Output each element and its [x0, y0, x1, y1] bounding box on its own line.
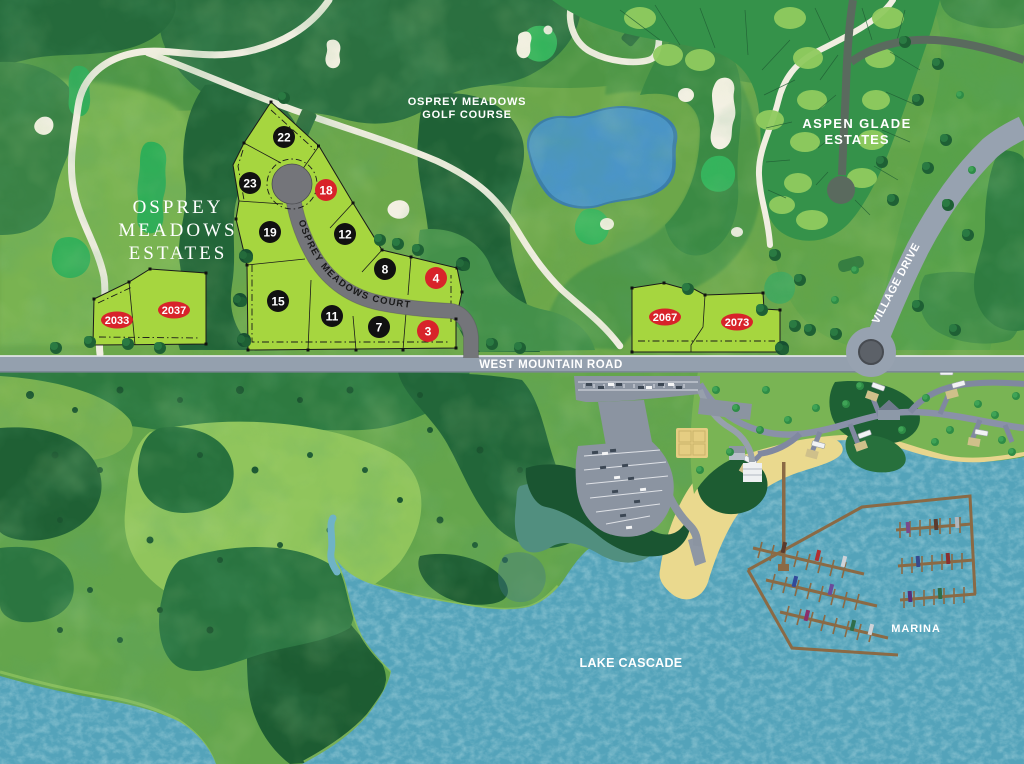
- svg-text:3: 3: [425, 325, 432, 339]
- svg-text:4: 4: [433, 272, 440, 286]
- svg-text:22: 22: [277, 131, 291, 145]
- svg-text:19: 19: [263, 226, 277, 240]
- svg-text:ESTATES: ESTATES: [129, 243, 228, 264]
- svg-text:WEST MOUNTAIN ROAD: WEST MOUNTAIN ROAD: [479, 359, 623, 371]
- svg-text:2033: 2033: [105, 315, 129, 327]
- svg-text:18: 18: [319, 184, 333, 198]
- svg-text:OSPREY MEADOWS: OSPREY MEADOWS: [408, 96, 527, 108]
- svg-text:12: 12: [338, 228, 352, 242]
- svg-text:2037: 2037: [162, 305, 186, 317]
- svg-text:7: 7: [376, 321, 383, 335]
- svg-text:ESTATES: ESTATES: [824, 132, 889, 147]
- svg-text:MEADOWS: MEADOWS: [118, 220, 237, 241]
- svg-text:15: 15: [271, 295, 285, 309]
- svg-text:8: 8: [382, 263, 389, 277]
- svg-text:11: 11: [326, 310, 339, 324]
- svg-text:2067: 2067: [653, 312, 677, 324]
- svg-text:23: 23: [243, 177, 257, 191]
- svg-text:2073: 2073: [725, 317, 749, 329]
- svg-text:LAKE CASCADE: LAKE CASCADE: [580, 656, 683, 670]
- svg-text:OSPREY: OSPREY: [133, 197, 224, 218]
- svg-text:GOLF COURSE: GOLF COURSE: [422, 109, 511, 121]
- svg-text:ASPEN GLADE: ASPEN GLADE: [802, 116, 911, 131]
- svg-text:MARINA: MARINA: [891, 623, 940, 635]
